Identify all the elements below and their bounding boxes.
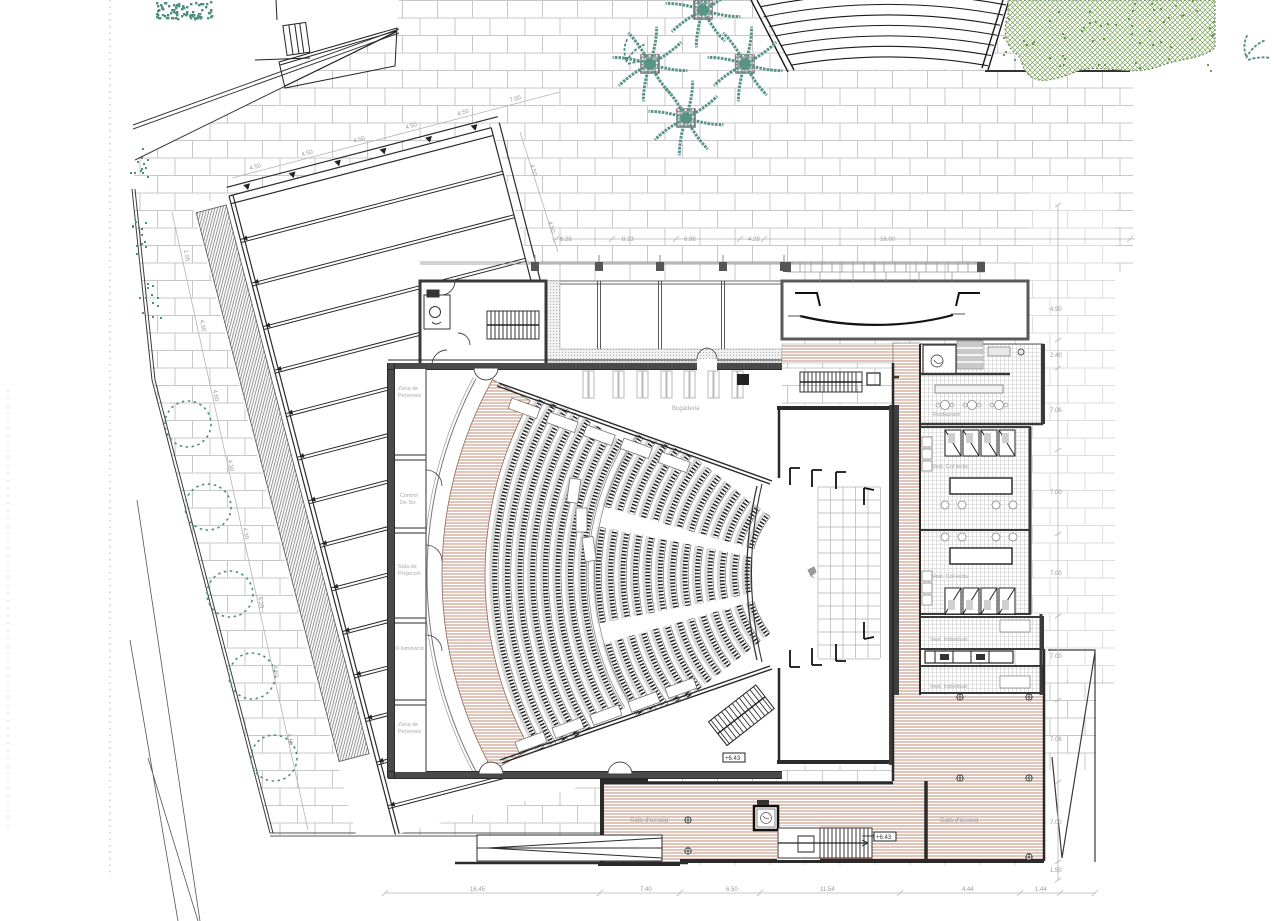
svg-text:Zona de: Zona de — [398, 722, 418, 728]
svg-text:Bugaderia: Bugaderia — [672, 406, 700, 412]
svg-text:Il·luminació: Il·luminació — [396, 646, 424, 652]
svg-text:7.06: 7.06 — [1050, 737, 1062, 743]
svg-text:6.28: 6.28 — [560, 237, 572, 243]
svg-text:Vest. Individual: Vest. Individual — [930, 684, 967, 690]
svg-text:7.00: 7.00 — [1050, 490, 1062, 496]
svg-text:Persones: Persones — [398, 729, 421, 735]
svg-text:16.45: 16.45 — [470, 887, 486, 893]
svg-text:+6.43: +6.43 — [725, 756, 741, 762]
svg-text:Sala d'assaig: Sala d'assaig — [940, 817, 979, 824]
svg-text:6.50: 6.50 — [726, 887, 738, 893]
svg-text:Control: Control — [400, 493, 418, 499]
svg-text:7.00: 7.00 — [1050, 654, 1062, 660]
svg-text:Projecció: Projecció — [398, 571, 421, 577]
svg-text:16.00: 16.00 — [880, 237, 896, 243]
svg-text:Vest. Col·lectiu: Vest. Col·lectiu — [932, 464, 969, 470]
svg-text:+6.43: +6.43 — [876, 835, 892, 841]
svg-text:7.06: 7.06 — [1050, 408, 1062, 414]
svg-text:Persones: Persones — [398, 393, 421, 399]
svg-text:7.40: 7.40 — [640, 887, 652, 893]
svg-text:4.28: 4.28 — [748, 237, 760, 243]
svg-text:De So: De So — [400, 500, 415, 506]
svg-text:Vest. Individual: Vest. Individual — [930, 637, 967, 643]
svg-text:1.44: 1.44 — [1035, 887, 1047, 893]
svg-text:6.98: 6.98 — [684, 237, 696, 243]
svg-text:Restaurant: Restaurant — [933, 412, 960, 418]
svg-text:4.90: 4.90 — [1050, 307, 1062, 313]
svg-text:8.33: 8.33 — [622, 237, 634, 243]
svg-text:1.50: 1.50 — [1050, 868, 1062, 874]
svg-text:Sala d'assaig: Sala d'assaig — [630, 817, 669, 824]
svg-text:Zona de: Zona de — [398, 386, 418, 392]
svg-text:11.54: 11.54 — [820, 887, 835, 893]
svg-text:Vest. Col·lectiu: Vest. Col·lectiu — [932, 574, 969, 580]
svg-text:7.00: 7.00 — [1050, 571, 1062, 577]
svg-text:4.44: 4.44 — [962, 887, 974, 893]
svg-text:2.40: 2.40 — [1050, 353, 1062, 359]
svg-text:7.00: 7.00 — [1050, 820, 1062, 826]
svg-text:Sala de: Sala de — [398, 564, 417, 570]
